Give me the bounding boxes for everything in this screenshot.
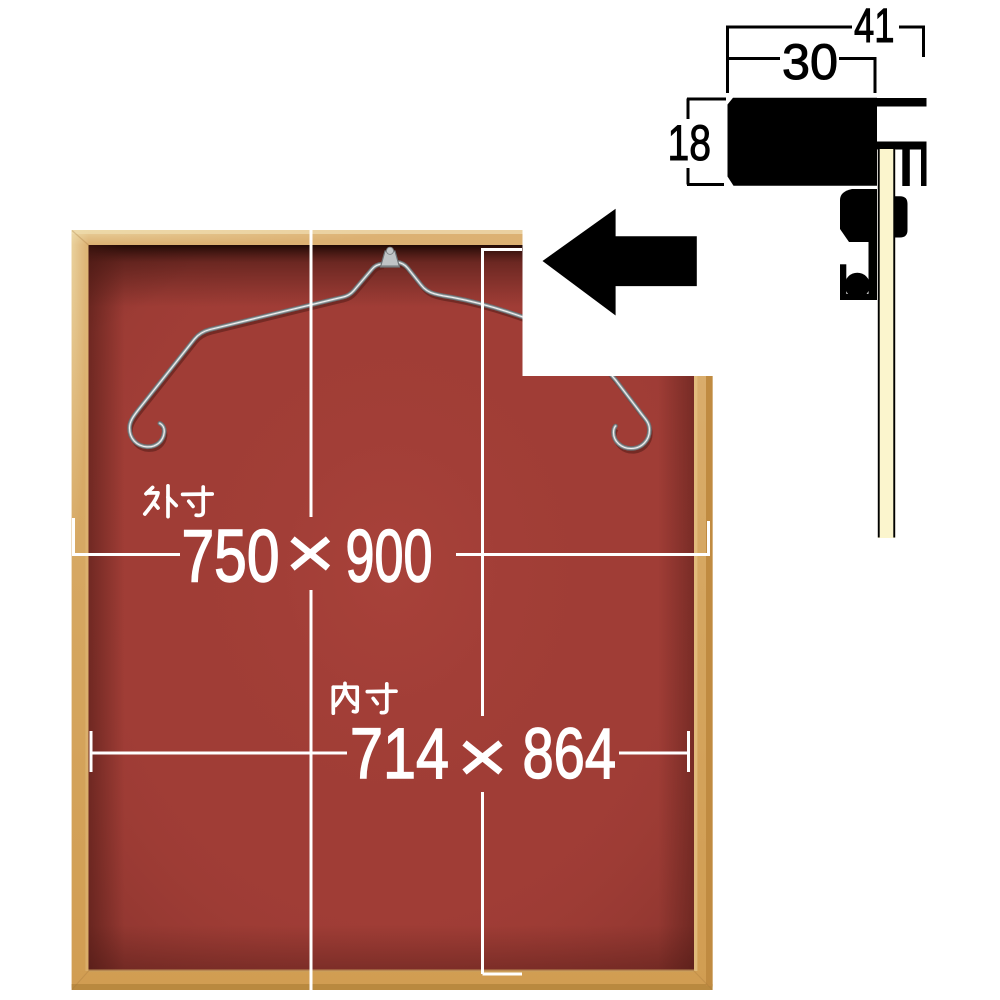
svg-text:714: 714: [350, 715, 449, 794]
svg-text:18: 18: [668, 115, 712, 171]
svg-text:30: 30: [782, 34, 838, 90]
svg-text:41: 41: [854, 0, 895, 53]
svg-text:750: 750: [182, 515, 280, 598]
svg-text:864: 864: [523, 715, 617, 794]
svg-text:900: 900: [346, 515, 433, 598]
